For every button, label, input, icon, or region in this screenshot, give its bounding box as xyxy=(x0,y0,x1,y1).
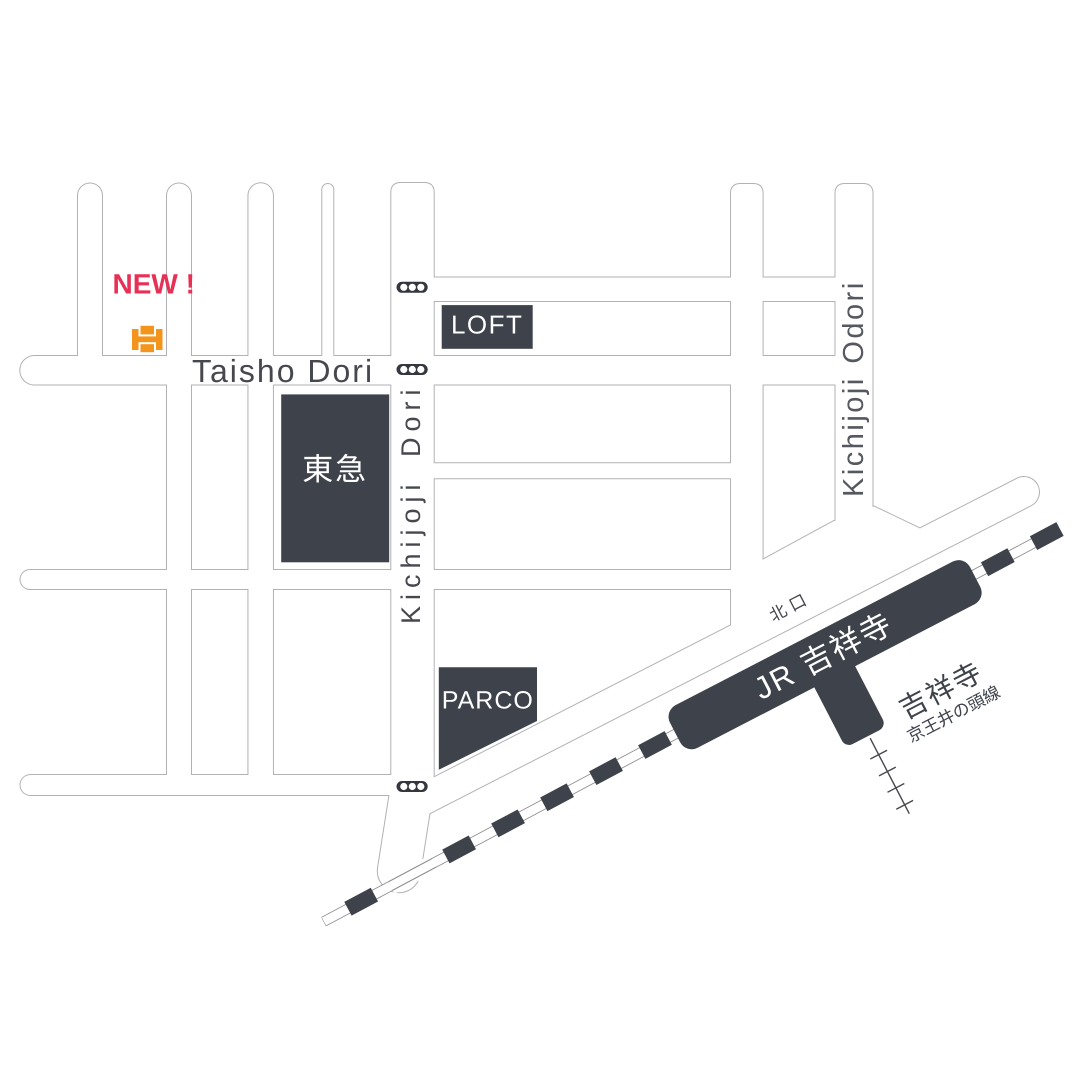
svg-text:PARCO: PARCO xyxy=(442,687,534,715)
svg-text:東急: 東急 xyxy=(302,452,368,487)
svg-text:Taisho Dori: Taisho Dori xyxy=(192,353,374,389)
svg-text:Kichijoji Dori: Kichijoji Dori xyxy=(396,383,426,624)
svg-text:NEW !: NEW ! xyxy=(113,269,195,300)
svg-text:Kichijoji Odori: Kichijoji Odori xyxy=(838,280,870,497)
svg-text:LOFT: LOFT xyxy=(451,310,523,340)
